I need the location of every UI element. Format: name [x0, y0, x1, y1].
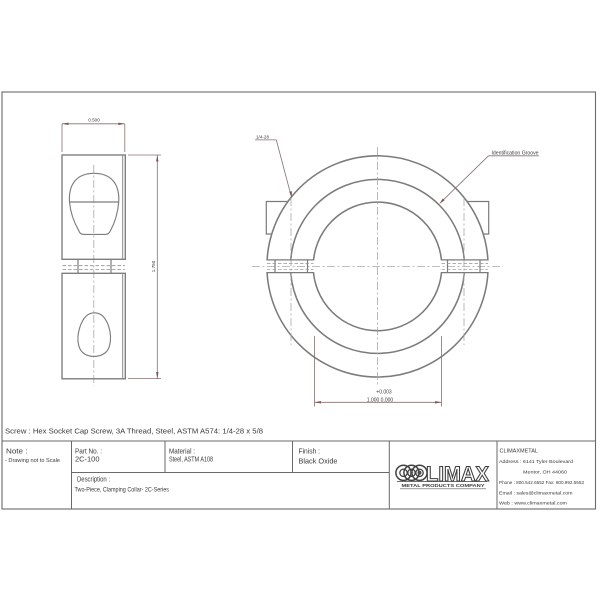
svg-text:- Drawing not to Scale: - Drawing not to Scale [5, 458, 60, 464]
svg-text:CLIMAXMETAL: CLIMAXMETAL [500, 449, 539, 455]
svg-text:Material :: Material : [169, 449, 195, 456]
svg-text:Mentor, OH 44060: Mentor, OH 44060 [523, 469, 567, 475]
svg-text:1.000 0.000: 1.000 0.000 [367, 398, 394, 404]
svg-text:0.500: 0.500 [88, 118, 100, 123]
svg-text:Finish :: Finish : [299, 448, 321, 455]
svg-text:Screw : Hex Socket Cap Screw,: Screw : Hex Socket Cap Screw, 3A Thread,… [5, 429, 263, 436]
svg-text:Address : 6141 Tyler Boulevard: Address : 6141 Tyler Boulevard [499, 459, 573, 465]
svg-text:Description :: Description : [77, 477, 110, 484]
svg-text:Two-Piece, Clamping Collar- 2C: Two-Piece, Clamping Collar- 2C-Series [75, 486, 170, 493]
svg-text:1.750: 1.750 [151, 260, 156, 272]
svg-text:1/4-28: 1/4-28 [256, 135, 269, 140]
svg-text:Phone : 800.542.6552 Fax: 800: Phone : 800.542.6552 Fax: 800.992.5553 [499, 480, 584, 486]
svg-text:Part No. :: Part No. : [75, 449, 102, 456]
svg-text:METAL PRODUCTS COMPANY: METAL PRODUCTS COMPANY [402, 483, 486, 489]
svg-text:Steel, ASTM A108: Steel, ASTM A108 [169, 457, 213, 464]
svg-text:+0.003: +0.003 [376, 389, 392, 395]
svg-text:Email : sales@climaxmetal.com: Email : sales@climaxmetal.com [499, 490, 573, 496]
svg-text:Note :: Note : [6, 449, 28, 456]
svg-text:Web : www.climaxmetal.com: Web : www.climaxmetal.com [499, 501, 567, 507]
svg-text:LIMAX: LIMAX [426, 463, 489, 486]
svg-text:Black Oxide: Black Oxide [299, 458, 338, 465]
svg-text:2C-100: 2C-100 [75, 457, 100, 464]
